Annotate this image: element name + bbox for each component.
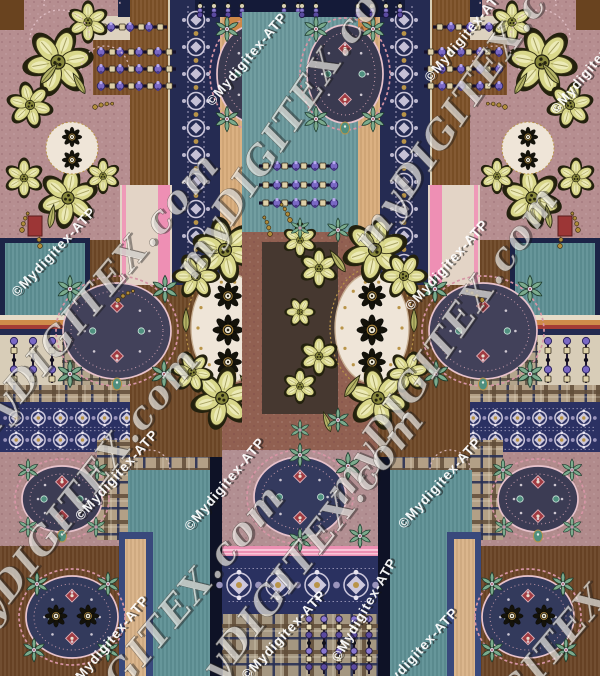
textile-pattern-svg: myDIGITEX.commyDIGITEX.commyDIGITEX.comm… — [0, 0, 600, 676]
textile-collage: myDIGITEX.commyDIGITEX.commyDIGITEX.comm… — [0, 0, 600, 676]
